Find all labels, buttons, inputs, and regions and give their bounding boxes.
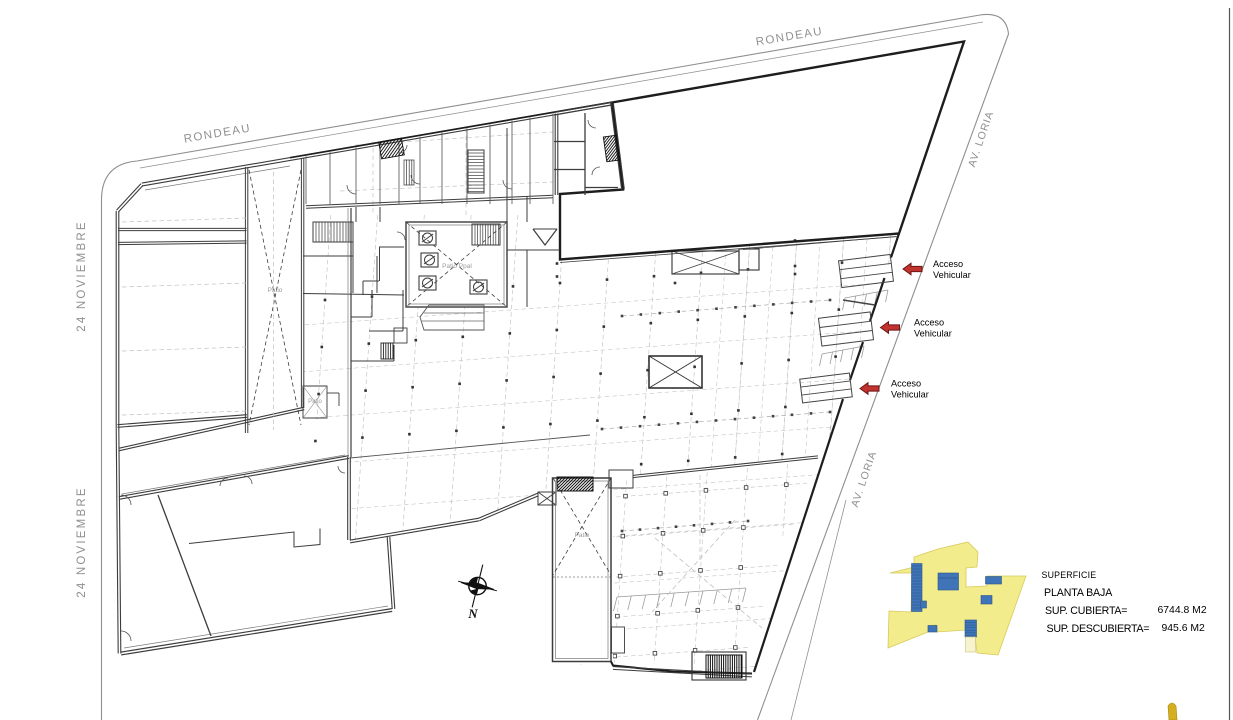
svg-text:Patio Ppal: Patio Ppal <box>442 263 472 270</box>
svg-text:Acceso: Acceso <box>933 259 963 269</box>
svg-text:6744.8 M2: 6744.8 M2 <box>1158 605 1207 616</box>
svg-text:N: N <box>467 606 478 621</box>
svg-text:24 NOVIEMBRE: 24 NOVIEMBRE <box>76 486 88 597</box>
svg-text:Vehicular: Vehicular <box>933 270 971 280</box>
svg-text:PLANTA BAJA: PLANTA BAJA <box>1044 587 1113 599</box>
svg-text:Acceso: Acceso <box>914 318 944 328</box>
svg-text:SUP. CUBIERTA=: SUP. CUBIERTA= <box>1045 605 1127 617</box>
svg-text:SUPERFICIE: SUPERFICIE <box>1042 570 1097 580</box>
svg-text:Vehicular: Vehicular <box>891 390 929 400</box>
svg-text:Patio: Patio <box>575 532 590 539</box>
svg-text:SUP. DESCUBIERTA=: SUP. DESCUBIERTA= <box>1047 623 1150 635</box>
svg-text:Acceso: Acceso <box>891 379 921 389</box>
svg-text:Patio: Patio <box>308 399 322 405</box>
svg-text:945.6 M2: 945.6 M2 <box>1162 623 1206 634</box>
svg-text:Patio: Patio <box>268 287 283 294</box>
svg-text:24 NOVIEMBRE: 24 NOVIEMBRE <box>76 220 88 331</box>
svg-text:Vehicular: Vehicular <box>914 329 952 339</box>
